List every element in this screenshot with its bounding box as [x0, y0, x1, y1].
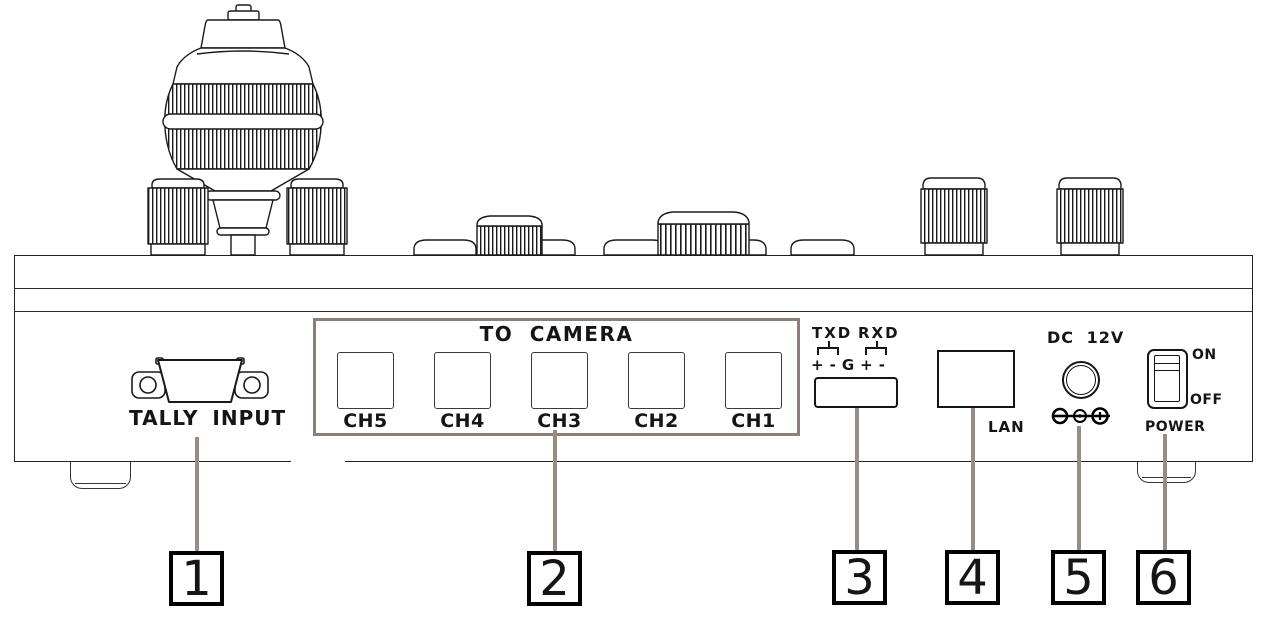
callout-marker-6: 6 [1136, 550, 1191, 605]
button-keycap-3 [604, 240, 665, 255]
rear-panel-diagram: TALLY INPUT TO CAMERA CH5 CH4 CH3 CH2 CH… [0, 0, 1269, 617]
button-keycap-1 [414, 240, 476, 255]
pin-label: - [879, 356, 885, 374]
pin-label: + [811, 356, 824, 374]
small-knob-2 [658, 212, 749, 255]
to-camera-title: TO CAMERA [316, 324, 797, 344]
rxd-bracket [865, 347, 887, 355]
dc-power-jack [1062, 361, 1100, 399]
dc-12v-label: DC 12V [1047, 330, 1124, 346]
rocker-inner [1154, 355, 1180, 402]
camera-port-ch3 [531, 352, 588, 409]
chassis-bottom-gap [291, 459, 345, 465]
small-knob-1 [477, 216, 542, 255]
tally-input-connector-icon [130, 356, 270, 406]
top-controls-illustration [0, 0, 1269, 256]
serial-terminal-block [814, 377, 898, 408]
button-keycap-5 [791, 240, 854, 255]
callout-line-4 [971, 408, 975, 551]
tally-input-label: TALLY INPUT [129, 408, 271, 428]
txd-bracket [817, 347, 839, 355]
knob-right-of-joystick [287, 179, 347, 255]
power-on-label: ON [1192, 348, 1217, 362]
callout-line-1 [195, 437, 199, 552]
camera-port-ch5 [337, 352, 394, 409]
power-rocker-switch [1147, 349, 1188, 409]
camera-channel-label: CH4 [434, 412, 491, 431]
callout-line-3 [855, 408, 859, 551]
camera-channel-label: CH3 [531, 412, 588, 431]
pin-label: + [860, 356, 873, 374]
knob-left-of-joystick [148, 179, 208, 255]
lan-port [937, 350, 1015, 408]
rubber-foot-left [70, 461, 131, 489]
lan-label: LAN [988, 420, 1025, 435]
dc-polarity-icon [1049, 405, 1113, 427]
camera-channel-label: CH2 [628, 412, 685, 431]
txd-label: TXD [812, 326, 852, 341]
camera-port-ch2 [628, 352, 685, 409]
serial-pin-labels: + - G + - [811, 356, 885, 374]
callout-marker-2: 2 [527, 551, 582, 606]
callout-marker-5: 5 [1051, 550, 1106, 605]
callout-line-5 [1077, 426, 1081, 551]
pin-label: G [842, 356, 854, 374]
rxd-label: RXD [858, 326, 900, 341]
to-camera-group: TO CAMERA CH5 CH4 CH3 CH2 CH1 [313, 318, 800, 436]
tall-knob-2 [1057, 178, 1123, 255]
chassis-seam-line-2 [15, 311, 1252, 312]
camera-port-ch1 [725, 352, 782, 409]
tall-knob-1 [921, 178, 987, 255]
callout-marker-3: 3 [832, 550, 887, 605]
callout-line-2 [553, 430, 557, 552]
chassis-seam-line-1 [15, 288, 1252, 289]
pin-label: - [830, 356, 836, 374]
camera-port-ch4 [434, 352, 491, 409]
callout-line-6 [1163, 434, 1167, 551]
power-label: POWER [1145, 420, 1205, 434]
camera-channel-label: CH1 [725, 412, 782, 431]
callout-marker-1: 1 [169, 551, 224, 606]
camera-channel-label: CH5 [337, 412, 394, 431]
callout-marker-4: 4 [945, 550, 1000, 605]
power-off-label: OFF [1190, 393, 1223, 407]
